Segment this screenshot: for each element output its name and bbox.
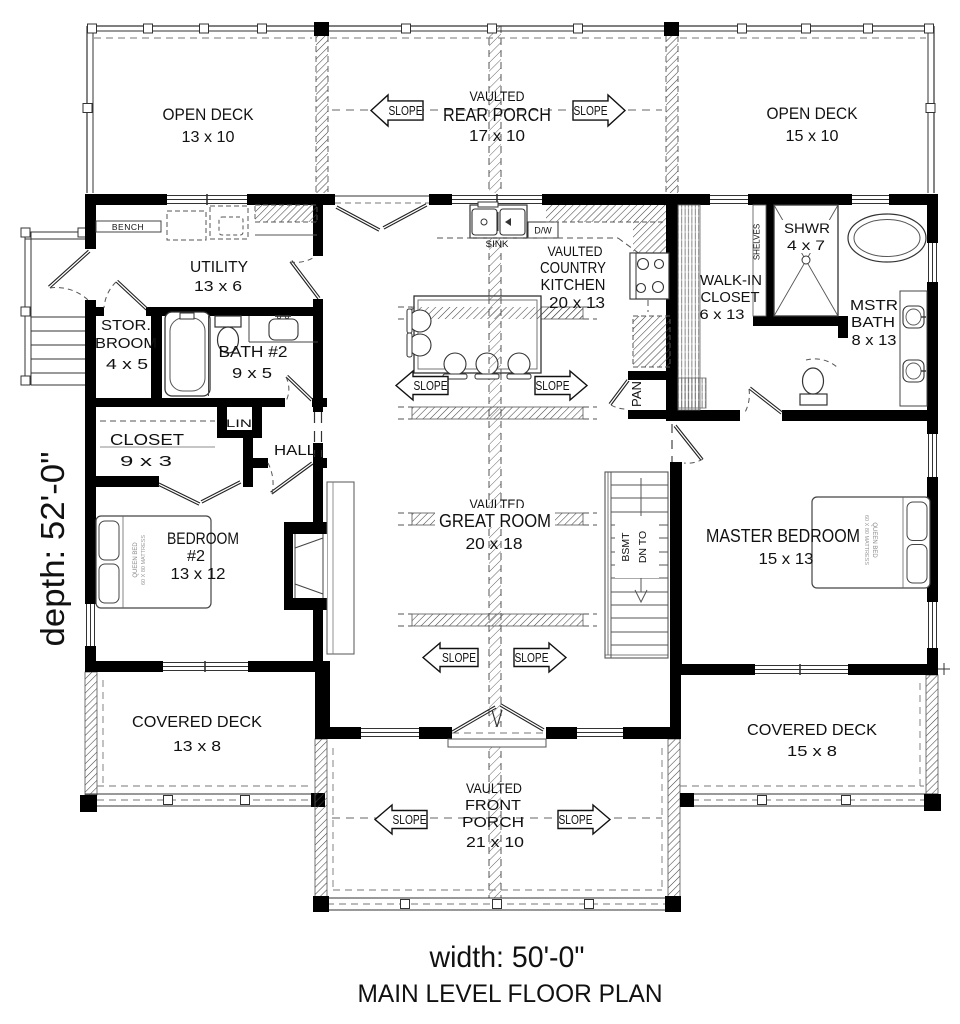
svg-text:SHWR: SHWR xyxy=(784,220,830,236)
svg-text:FRONT: FRONT xyxy=(465,797,521,814)
svg-text:SINK: SINK xyxy=(486,239,509,249)
svg-text:60 X 80 MATTRESS: 60 X 80 MATTRESS xyxy=(141,535,147,585)
svg-text:SLOPE: SLOPE xyxy=(393,813,427,827)
svg-text:LIN: LIN xyxy=(226,418,252,430)
svg-text:SLOPE: SLOPE xyxy=(559,813,593,827)
svg-text:VAULTED: VAULTED xyxy=(470,88,525,104)
svg-text:PAN: PAN xyxy=(629,381,644,407)
svg-text:PORCH: PORCH xyxy=(462,814,524,831)
svg-text:CLOSET: CLOSET xyxy=(110,432,184,449)
svg-text:SLOPE: SLOPE xyxy=(442,651,476,665)
svg-text:15 x 13: 15 x 13 xyxy=(759,551,814,568)
svg-text:20 x 13: 20 x 13 xyxy=(549,295,605,312)
svg-text:20 x 18: 20 x 18 xyxy=(466,536,523,553)
svg-text:9 x 3: 9 x 3 xyxy=(120,453,172,470)
svg-text:MSTR: MSTR xyxy=(850,297,898,314)
svg-text:COVERED DECK: COVERED DECK xyxy=(747,722,877,739)
svg-text:CLOSET: CLOSET xyxy=(701,289,760,306)
svg-text:QUEEN BED: QUEEN BED xyxy=(133,542,139,578)
svg-text:DN TO: DN TO xyxy=(637,531,649,563)
svg-text:UTILITY: UTILITY xyxy=(190,259,248,276)
svg-text:OPEN DECK: OPEN DECK xyxy=(767,104,859,123)
svg-text:SLOPE: SLOPE xyxy=(536,379,570,393)
svg-text:OPEN DECK: OPEN DECK xyxy=(163,105,255,124)
svg-text:SHELVES: SHELVES xyxy=(753,224,762,260)
svg-text:9 x 5: 9 x 5 xyxy=(232,365,272,382)
svg-text:GREAT ROOM: GREAT ROOM xyxy=(439,511,551,531)
svg-text:15 x 8: 15 x 8 xyxy=(787,743,837,760)
svg-text:WALK-IN: WALK-IN xyxy=(700,272,762,289)
svg-text:13 x 12: 13 x 12 xyxy=(171,566,226,583)
svg-text:COVERED DECK: COVERED DECK xyxy=(132,714,262,731)
svg-text:#2: #2 xyxy=(187,548,205,565)
svg-text:STOR.: STOR. xyxy=(101,317,151,334)
svg-text:8 x 13: 8 x 13 xyxy=(852,332,897,349)
svg-text:VAULTED: VAULTED xyxy=(466,780,522,796)
svg-text:21 x 10: 21 x 10 xyxy=(466,834,524,851)
svg-text:REAR PORCH: REAR PORCH xyxy=(443,105,551,125)
svg-text:SLOPE: SLOPE xyxy=(515,651,549,665)
svg-text:BEDROOM: BEDROOM xyxy=(167,529,239,548)
svg-text:4 x 7: 4 x 7 xyxy=(787,237,825,253)
svg-text:depth: 52'-0": depth: 52'-0" xyxy=(34,452,71,647)
svg-text:6 x 13: 6 x 13 xyxy=(700,306,745,322)
svg-text:COUNTRY: COUNTRY xyxy=(540,260,606,277)
svg-text:13 x 6: 13 x 6 xyxy=(194,278,242,295)
svg-text:width: 50'-0": width: 50'-0" xyxy=(429,941,585,974)
svg-text:15 x 10: 15 x 10 xyxy=(786,128,839,145)
svg-text:SLOPE: SLOPE xyxy=(414,379,448,393)
svg-text:KITCHEN: KITCHEN xyxy=(541,277,606,294)
svg-text:17 x 10: 17 x 10 xyxy=(469,128,525,145)
svg-text:13 x 8: 13 x 8 xyxy=(173,738,221,755)
svg-text:BENCH: BENCH xyxy=(112,222,144,232)
svg-text:HALL: HALL xyxy=(274,442,316,459)
svg-text:4 x 5: 4 x 5 xyxy=(106,356,148,373)
svg-text:MAIN LEVEL FLOOR PLAN: MAIN LEVEL FLOOR PLAN xyxy=(358,980,663,1008)
svg-text:VAULTED: VAULTED xyxy=(548,243,603,259)
svg-text:MASTER BEDROOM: MASTER BEDROOM xyxy=(706,526,860,546)
svg-text:BROOM: BROOM xyxy=(95,335,157,352)
svg-text:BATH #2: BATH #2 xyxy=(219,344,288,361)
svg-text:BSMT: BSMT xyxy=(620,532,632,562)
svg-text:60 X 80 MATTRESS: 60 X 80 MATTRESS xyxy=(863,515,869,565)
svg-text:13 x 10: 13 x 10 xyxy=(182,129,235,146)
svg-text:SLOPE: SLOPE xyxy=(389,104,423,118)
svg-text:D/W: D/W xyxy=(534,226,552,236)
svg-text:QUEEN BED: QUEEN BED xyxy=(871,522,877,558)
svg-text:BATH: BATH xyxy=(851,314,895,331)
svg-text:SLOPE: SLOPE xyxy=(574,104,608,118)
